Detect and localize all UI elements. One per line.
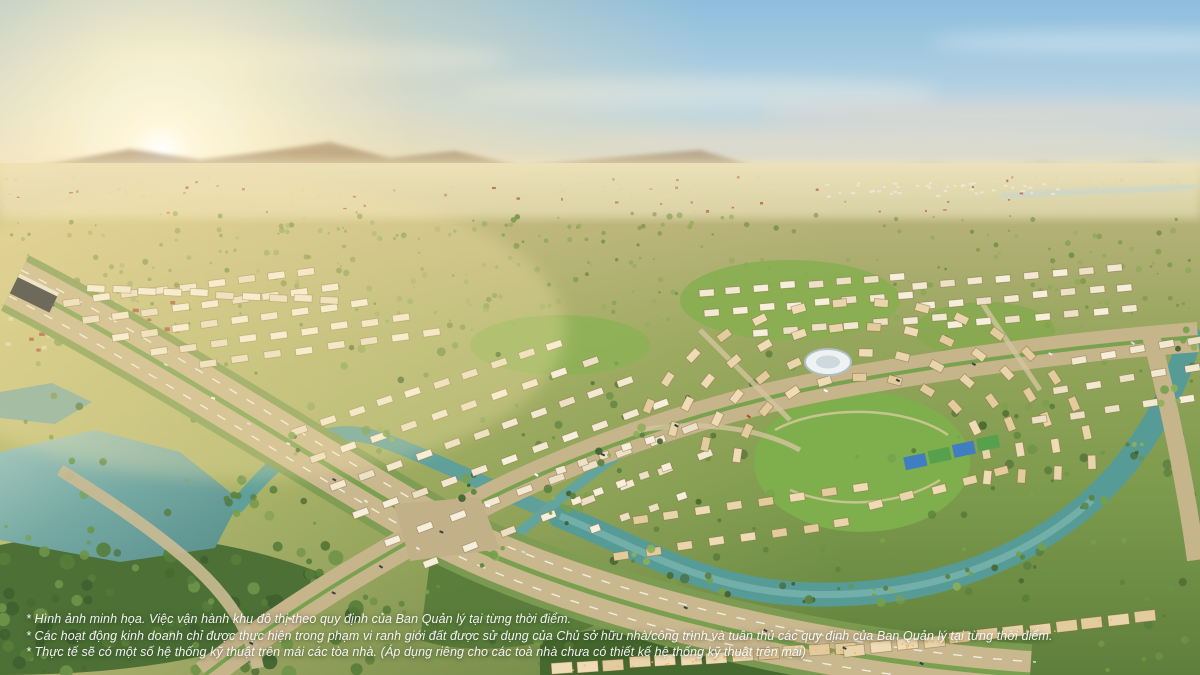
disclaimer-line-2: * Các hoạt động kinh doanh chỉ được thực… xyxy=(26,628,1053,645)
stadium-roof xyxy=(816,356,840,369)
disclaimer: * Hình ảnh minh họa. Việc vận hành khu đ… xyxy=(26,611,1053,661)
aerial-render: * Hình ảnh minh họa. Việc vận hành khu đ… xyxy=(0,0,1200,675)
scene-canvas xyxy=(0,0,1200,675)
disclaimer-line-1: * Hình ảnh minh họa. Việc vận hành khu đ… xyxy=(26,611,1053,628)
disclaimer-line-3: * Thực tế sẽ có một số hệ thống kỹ thuật… xyxy=(26,644,1053,661)
